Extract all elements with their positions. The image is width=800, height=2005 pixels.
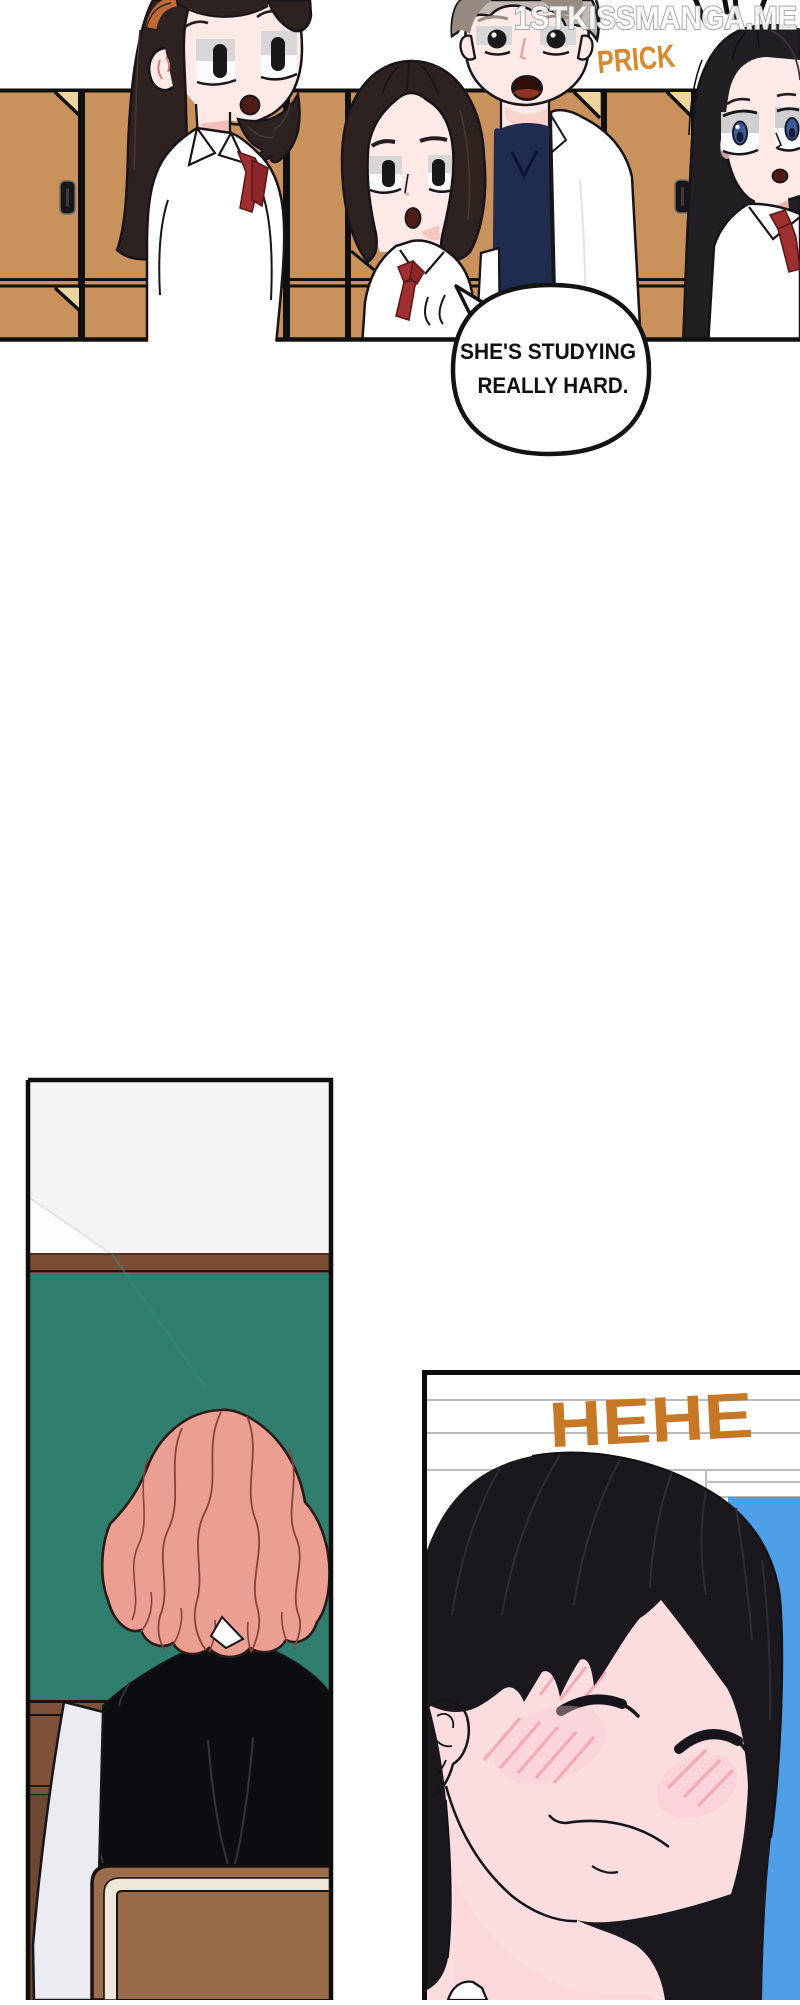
svg-text:1STKISSMANGA.ME: 1STKISSMANGA.ME — [514, 0, 797, 36]
svg-text:PRICK: PRICK — [596, 38, 677, 81]
svg-text:REALLY HARD.: REALLY HARD. — [478, 373, 629, 398]
svg-text:HEHE: HEHE — [547, 1379, 754, 1462]
svg-text:SHE'S STUDYING: SHE'S STUDYING — [460, 339, 636, 364]
